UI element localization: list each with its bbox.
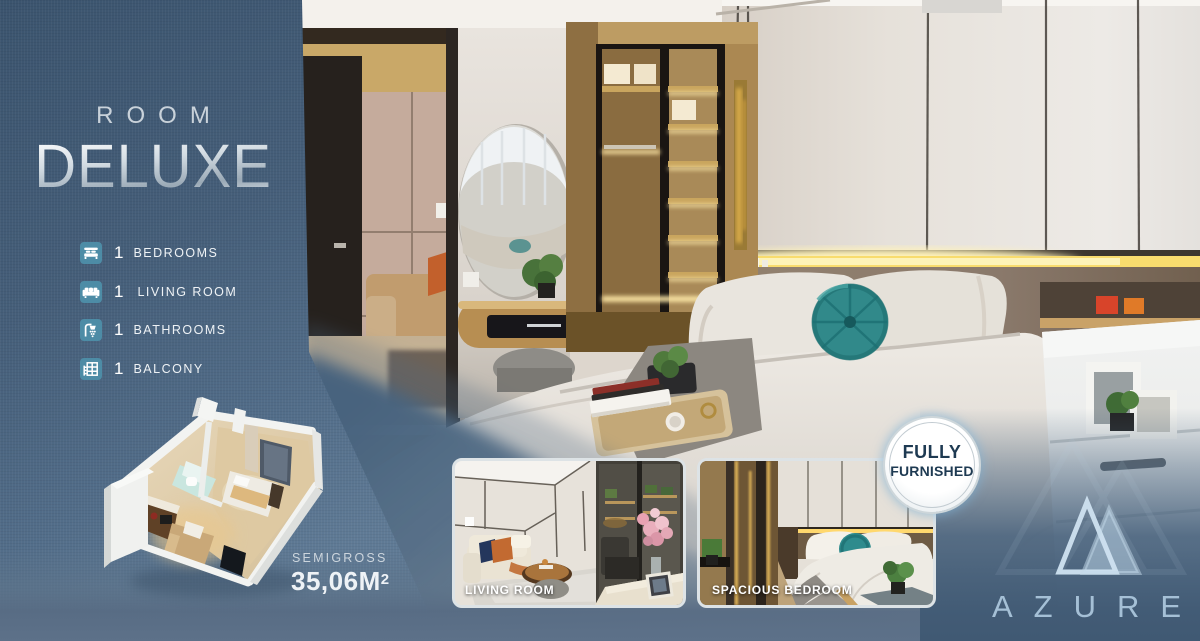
svg-text:AZURE: AZURE — [992, 589, 1200, 624]
